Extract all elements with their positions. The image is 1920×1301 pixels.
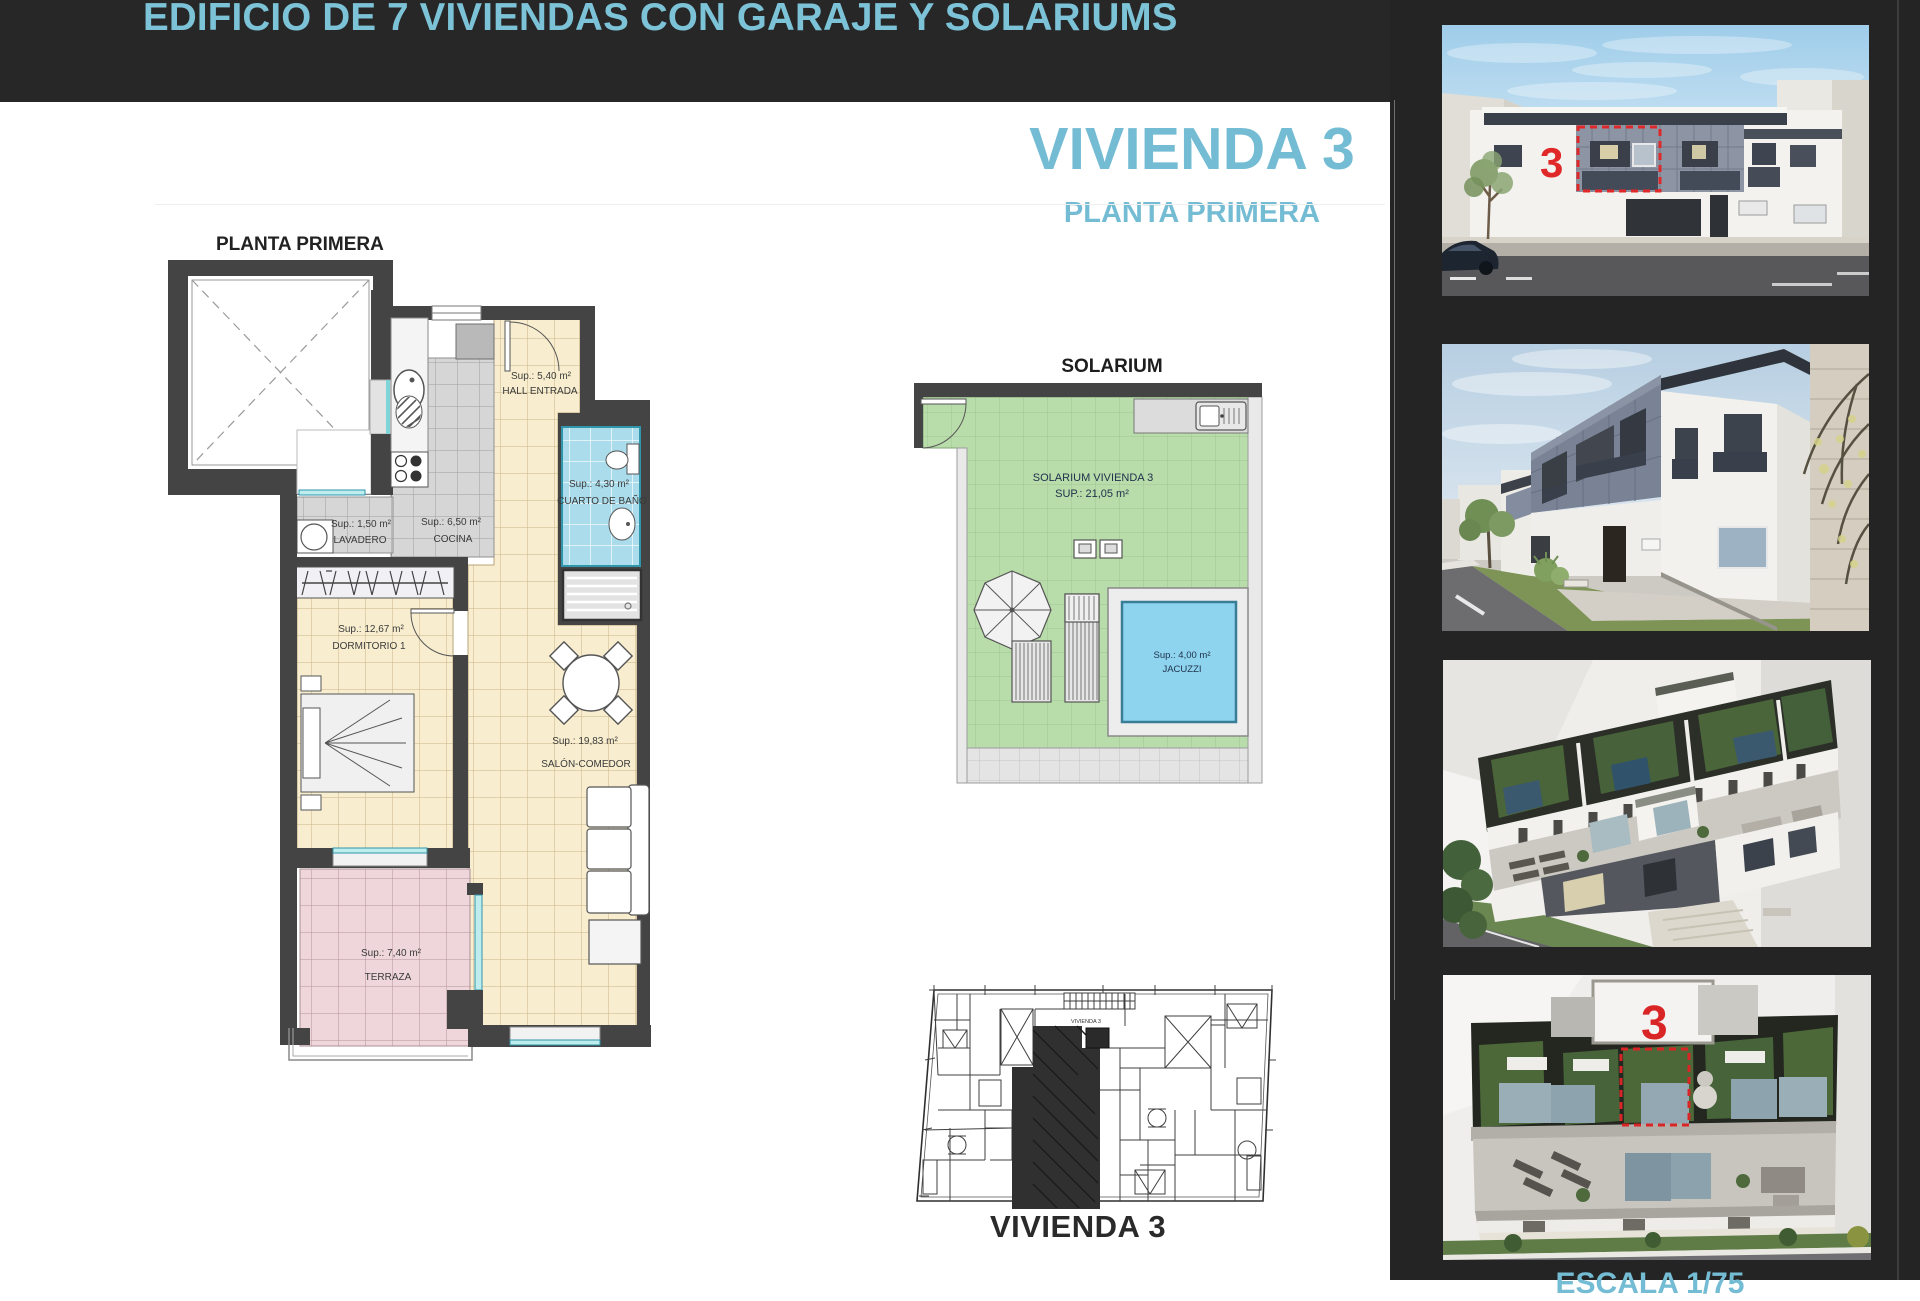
svg-text:CUARTO DE BAÑO: CUARTO DE BAÑO <box>557 494 647 507</box>
svg-text:SUP.: 21,05 m²: SUP.: 21,05 m² <box>1055 488 1129 500</box>
svg-text:LAVADERO: LAVADERO <box>334 535 387 546</box>
svg-text:SOLARIUM: SOLARIUM <box>1061 356 1162 377</box>
svg-text:3: 3 <box>1641 997 1668 1050</box>
svg-text:JACUZZI: JACUZZI <box>1162 664 1201 675</box>
svg-text:VIVIENDA 3: VIVIENDA 3 <box>1071 1019 1101 1025</box>
svg-text:3: 3 <box>1540 139 1563 186</box>
svg-text:SALÓN-COMEDOR: SALÓN-COMEDOR <box>541 757 630 770</box>
svg-text:Sup.: 5,40 m²: Sup.: 5,40 m² <box>511 371 572 382</box>
svg-text:Sup.: 4,30 m²: Sup.: 4,30 m² <box>569 479 630 490</box>
svg-text:HALL ENTRADA: HALL ENTRADA <box>502 386 578 397</box>
svg-text:SOLARIUM VIVIENDA 3: SOLARIUM VIVIENDA 3 <box>1033 472 1153 484</box>
svg-text:PLANTA PRIMERA: PLANTA PRIMERA <box>216 234 384 255</box>
svg-text:Sup.: 4,00 m²: Sup.: 4,00 m² <box>1153 650 1210 661</box>
svg-text:Sup.: 7,40 m²: Sup.: 7,40 m² <box>361 948 422 959</box>
svg-text:VIVIENDA 3: VIVIENDA 3 <box>990 1209 1166 1244</box>
svg-text:Sup.: 1,50 m²: Sup.: 1,50 m² <box>331 519 392 530</box>
svg-text:Sup.: 19,83 m²: Sup.: 19,83 m² <box>552 736 618 747</box>
svg-text:Sup.: 6,50 m²: Sup.: 6,50 m² <box>421 517 482 528</box>
svg-text:DORMITORIO 1: DORMITORIO 1 <box>332 641 406 652</box>
svg-text:TERRAZA: TERRAZA <box>365 972 412 983</box>
svg-text:Sup.: 12,67 m²: Sup.: 12,67 m² <box>338 624 404 635</box>
svg-text:COCINA: COCINA <box>434 534 473 545</box>
